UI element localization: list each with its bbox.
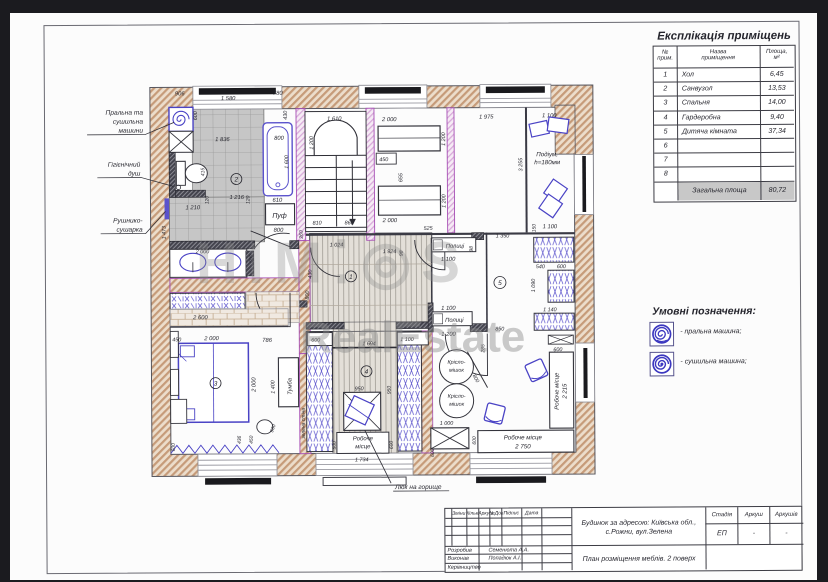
svg-text:120: 120 bbox=[204, 196, 210, 205]
svg-text:h=180мм: h=180мм bbox=[534, 159, 561, 166]
svg-text:сушильна: сушильна bbox=[113, 119, 144, 126]
svg-text:місце: місце bbox=[355, 444, 371, 450]
svg-text:1 200: 1 200 bbox=[441, 132, 447, 146]
svg-text:1 734: 1 734 bbox=[355, 457, 369, 463]
svg-text:машини: машини bbox=[118, 128, 143, 135]
svg-text:1 600: 1 600 bbox=[284, 155, 290, 169]
svg-text:450: 450 bbox=[249, 435, 255, 444]
svg-text:1 400: 1 400 bbox=[271, 380, 277, 394]
svg-text:2 750: 2 750 bbox=[514, 443, 531, 450]
svg-text:Рушнико-: Рушнико- bbox=[113, 218, 143, 225]
svg-text:800: 800 bbox=[274, 136, 284, 142]
svg-text:610: 610 bbox=[272, 198, 282, 204]
svg-text:120: 120 bbox=[245, 195, 251, 204]
svg-text:RealEstate: RealEstate bbox=[300, 312, 525, 362]
svg-text:НІМ⁚◎Ѕ: НІМ⁚◎Ѕ bbox=[196, 230, 470, 297]
svg-text:1 100: 1 100 bbox=[543, 224, 558, 230]
svg-text:1 140: 1 140 bbox=[543, 307, 557, 313]
svg-text:2 000: 2 000 bbox=[381, 117, 397, 123]
svg-text:450: 450 bbox=[172, 337, 181, 343]
svg-text:1 200: 1 200 bbox=[309, 136, 315, 150]
svg-text:Люк на горище: Люк на горище bbox=[394, 484, 442, 491]
svg-text:1 975: 1 975 bbox=[479, 115, 494, 121]
svg-text:2 000: 2 000 bbox=[382, 218, 398, 224]
svg-text:436: 436 bbox=[237, 435, 243, 444]
svg-text:786: 786 bbox=[262, 338, 272, 344]
svg-text:1 580: 1 580 bbox=[221, 96, 236, 102]
svg-text:2 000: 2 000 bbox=[251, 377, 257, 393]
svg-text:Робоче місце: Робоче місце bbox=[504, 434, 543, 441]
svg-text:1 836: 1 836 bbox=[215, 137, 230, 143]
svg-text:мішок: мішок bbox=[449, 402, 464, 408]
svg-text:1 000: 1 000 bbox=[440, 421, 454, 427]
svg-text:2: 2 bbox=[234, 177, 239, 184]
svg-text:906: 906 bbox=[175, 91, 185, 97]
svg-text:1 473: 1 473 bbox=[162, 226, 168, 240]
svg-text:600: 600 bbox=[389, 441, 395, 450]
svg-text:4: 4 bbox=[365, 369, 369, 376]
svg-text:780: 780 bbox=[273, 91, 283, 97]
svg-text:Гігієнічний: Гігієнічний bbox=[108, 161, 141, 169]
svg-text:860: 860 bbox=[345, 220, 354, 226]
svg-text:мішок: мішок bbox=[449, 368, 464, 374]
svg-text:950: 950 bbox=[355, 386, 364, 392]
svg-text:1 200: 1 200 bbox=[441, 194, 447, 208]
svg-text:3 255: 3 255 bbox=[518, 157, 524, 172]
svg-text:600: 600 bbox=[472, 436, 478, 445]
svg-text:1 100: 1 100 bbox=[441, 306, 456, 312]
svg-text:1 210: 1 210 bbox=[186, 205, 201, 211]
svg-text:600: 600 bbox=[553, 347, 562, 353]
svg-text:810: 810 bbox=[313, 221, 322, 227]
svg-text:Пуф: Пуф bbox=[272, 213, 287, 220]
svg-text:600: 600 bbox=[171, 443, 177, 452]
svg-text:600: 600 bbox=[193, 111, 199, 120]
svg-text:540: 540 bbox=[536, 264, 545, 270]
svg-text:2 600: 2 600 bbox=[192, 315, 208, 321]
svg-text:душ: душ bbox=[128, 170, 141, 178]
svg-text:1 090: 1 090 bbox=[531, 279, 537, 293]
svg-text:1 216: 1 216 bbox=[229, 195, 244, 201]
svg-text:зелена стіна: зелена стіна bbox=[301, 408, 307, 440]
svg-text:Крісло-: Крісло- bbox=[448, 394, 466, 400]
svg-text:сушарка: сушарка bbox=[117, 227, 143, 234]
svg-text:430: 430 bbox=[283, 111, 289, 120]
svg-text:655: 655 bbox=[398, 172, 404, 182]
svg-text:150: 150 bbox=[532, 224, 538, 233]
svg-text:1 610: 1 610 bbox=[327, 116, 342, 122]
svg-text:450: 450 bbox=[379, 157, 388, 163]
svg-text:3: 3 bbox=[214, 381, 218, 388]
svg-text:500: 500 bbox=[332, 441, 338, 450]
svg-text:5: 5 bbox=[498, 280, 502, 287]
svg-text:Робоче місце: Робоче місце bbox=[554, 372, 560, 410]
svg-text:Подіум,: Подіум, bbox=[536, 151, 558, 158]
svg-text:2 215: 2 215 bbox=[563, 383, 569, 400]
svg-text:Пральна та: Пральна та bbox=[106, 110, 144, 117]
svg-text:1 350: 1 350 bbox=[496, 233, 510, 239]
svg-text:600: 600 bbox=[430, 448, 436, 457]
svg-text:600: 600 bbox=[557, 264, 566, 270]
svg-text:2 000: 2 000 bbox=[203, 336, 219, 342]
svg-text:950: 950 bbox=[387, 386, 393, 395]
svg-text:415: 415 bbox=[200, 168, 206, 177]
svg-text:Тумба: Тумба bbox=[288, 377, 294, 395]
